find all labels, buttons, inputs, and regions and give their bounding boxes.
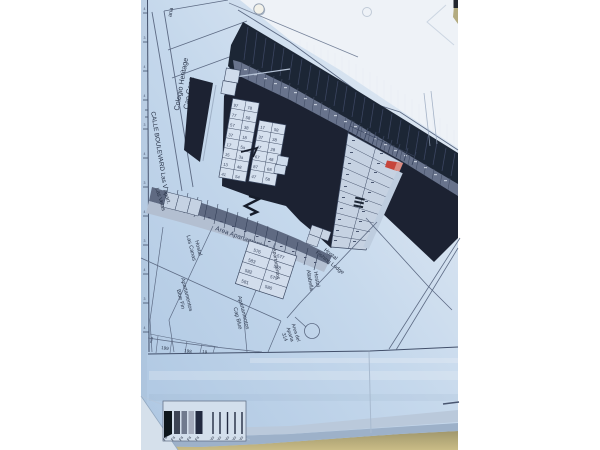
- svg-text:3: 3: [144, 123, 146, 127]
- svg-text:4: 4: [144, 65, 146, 69]
- svg-text:3: 3: [144, 297, 146, 301]
- svg-text:3: 3: [144, 36, 146, 40]
- svg-text:4: 4: [144, 326, 146, 330]
- svg-text:4: 4: [144, 268, 146, 272]
- svg-text:4: 4: [144, 210, 146, 214]
- svg-text:3: 3: [144, 181, 146, 185]
- svg-text:4: 4: [144, 7, 146, 11]
- svg-text:3: 3: [144, 239, 146, 243]
- svg-text:4: 4: [144, 94, 146, 98]
- svg-text:4: 4: [144, 152, 146, 156]
